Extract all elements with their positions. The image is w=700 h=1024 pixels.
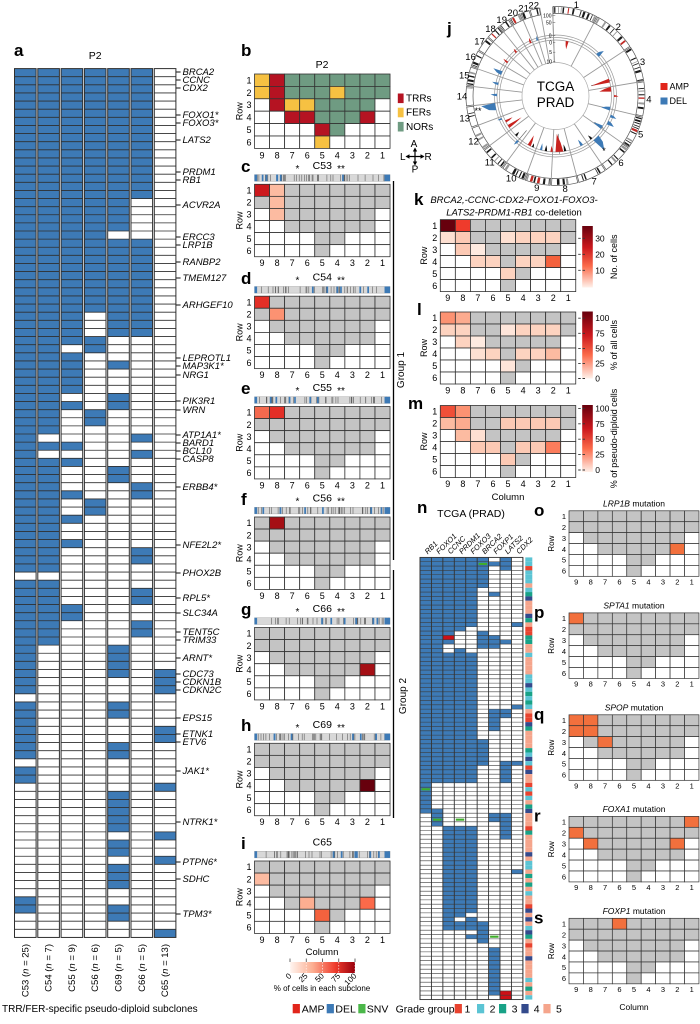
svg-text:4: 4 [246,444,251,454]
svg-text:7: 7 [475,479,480,489]
svg-text:4: 4 [335,370,340,380]
svg-text:r: r [534,807,541,826]
svg-text:1: 1 [380,258,385,268]
svg-text:8: 8 [589,680,593,689]
svg-text:2: 2 [246,88,251,98]
svg-text:Row: Row [547,535,556,551]
svg-text:6: 6 [246,137,251,147]
svg-text:*: * [296,607,300,618]
svg-text:4: 4 [521,479,526,489]
svg-text:6: 6 [490,479,495,489]
svg-text:NORs: NORs [406,122,433,133]
svg-text:9: 9 [574,782,578,791]
svg-text:4: 4 [335,258,340,268]
svg-text:3: 3 [562,840,566,849]
svg-text:4: 4 [521,386,526,396]
svg-text:1: 1 [574,0,579,11]
svg-text:4: 4 [562,647,566,656]
svg-text:6: 6 [305,701,310,711]
svg-text:C53 (n = 25): C53 (n = 25) [20,944,31,997]
svg-text:6: 6 [305,591,310,601]
svg-text:1: 1 [562,818,566,827]
svg-text:7: 7 [290,480,295,490]
svg-text:3: 3 [661,985,665,994]
svg-text:LRP1B mutation: LRP1B mutation [603,498,665,508]
svg-text:4: 4 [432,349,437,359]
svg-text:ETV6: ETV6 [183,737,207,748]
svg-text:h: h [241,716,251,735]
svg-text:5: 5 [320,817,325,827]
svg-text:% of all cells: % of all cells [609,319,619,370]
svg-text:8: 8 [589,883,593,892]
svg-text:5: 5 [632,883,636,892]
svg-text:Grade group: Grade group [396,1004,455,1016]
svg-text:a: a [14,41,24,60]
svg-text:5: 5 [432,455,437,465]
svg-text:100: 100 [543,14,552,20]
svg-text:4: 4 [562,545,566,554]
svg-text:R: R [425,152,432,163]
svg-text:6: 6 [432,281,437,291]
svg-text:5: 5 [320,370,325,380]
svg-text:1: 1 [432,313,437,323]
svg-text:C65: C65 [313,837,332,849]
svg-text:7: 7 [603,782,607,791]
svg-text:5: 5 [505,479,510,489]
svg-text:9: 9 [259,151,264,161]
svg-text:1: 1 [566,293,571,303]
svg-text:RANBP2: RANBP2 [183,257,222,268]
svg-text:25: 25 [595,358,605,368]
svg-text:6: 6 [432,373,437,383]
svg-text:2: 2 [432,419,437,429]
svg-text:3: 3 [350,480,355,490]
svg-text:TPM3*: TPM3* [183,909,212,920]
svg-text:1: 1 [562,614,566,623]
svg-text:Row: Row [235,654,245,673]
svg-text:0: 0 [549,41,552,47]
svg-text:4: 4 [246,898,251,908]
svg-text:AMP: AMP [670,82,690,92]
svg-text:L: L [400,152,406,163]
svg-text:6: 6 [305,935,310,945]
svg-text:8: 8 [275,935,280,945]
svg-text:6: 6 [305,370,310,380]
svg-text:10: 10 [506,174,517,185]
svg-text:C65 (n = 13): C65 (n = 13) [160,944,171,997]
svg-text:5: 5 [632,680,636,689]
svg-text:1: 1 [690,883,694,892]
svg-text:2: 2 [675,883,679,892]
svg-text:20: 20 [507,8,518,19]
svg-text:ACVR2A: ACVR2A [182,200,221,211]
svg-text:LATS2-PRDM1-RB1 co-deletion: LATS2-PRDM1-RB1 co-deletion [446,208,582,219]
svg-text:FERs: FERs [406,108,431,119]
svg-text:2: 2 [562,931,566,940]
svg-text:1: 1 [246,629,251,639]
svg-text:2: 2 [365,591,370,601]
svg-text:22: 22 [528,0,539,11]
svg-text:2: 2 [562,523,566,532]
svg-text:7: 7 [603,883,607,892]
svg-text:C53: C53 [313,160,332,172]
svg-text:8: 8 [275,370,280,380]
svg-text:Row: Row [419,432,429,451]
svg-text:4: 4 [335,701,340,711]
svg-text:Row: Row [547,943,556,959]
svg-text:5: 5 [505,386,510,396]
svg-text:4: 4 [534,1004,540,1016]
svg-text:2: 2 [551,386,556,396]
svg-text:7: 7 [603,680,607,689]
svg-text:LATS2: LATS2 [183,135,212,146]
svg-text:9: 9 [574,883,578,892]
svg-text:0: 0 [595,465,600,475]
svg-text:n: n [417,498,427,517]
svg-text:3: 3 [246,210,251,220]
svg-text:2: 2 [551,479,556,489]
svg-text:NRG1: NRG1 [183,370,209,381]
svg-text:1: 1 [380,480,385,490]
svg-text:50: 50 [546,21,552,27]
svg-text:**: ** [337,164,345,175]
svg-text:6: 6 [562,567,566,576]
svg-text:o: o [534,501,544,520]
svg-text:TMEM127: TMEM127 [183,273,228,284]
svg-text:2: 2 [365,935,370,945]
svg-text:g: g [241,600,251,619]
svg-text:1: 1 [690,578,694,587]
svg-text:4: 4 [562,850,566,859]
svg-text:C56 (n = 6): C56 (n = 6) [90,944,101,992]
svg-text:3: 3 [562,534,566,543]
svg-text:2: 2 [675,985,679,994]
svg-text:% of pseudo-diploid cells: % of pseudo-diploid cells [609,388,619,488]
svg-text:7: 7 [290,701,295,711]
svg-text:7: 7 [603,985,607,994]
svg-text:2: 2 [365,258,370,268]
svg-text:1: 1 [246,75,251,85]
svg-text:s: s [534,909,543,928]
svg-text:9: 9 [259,370,264,380]
svg-text:3: 3 [432,245,437,255]
svg-text:2: 2 [246,198,251,208]
svg-text:SLC34A: SLC34A [183,608,218,619]
svg-text:3: 3 [246,653,251,663]
svg-text:JAK1*: JAK1* [182,766,210,777]
svg-text:b: b [241,41,251,60]
svg-text:1: 1 [246,518,251,528]
svg-text:2: 2 [246,530,251,540]
svg-text:1: 1 [246,862,251,872]
svg-text:5: 5 [562,658,566,667]
svg-text:7: 7 [475,293,480,303]
svg-text:4: 4 [246,222,251,232]
svg-text:4: 4 [646,985,650,994]
svg-text:3: 3 [536,386,541,396]
svg-text:Column: Column [619,1002,649,1012]
svg-text:3: 3 [246,542,251,552]
svg-text:7: 7 [475,386,480,396]
svg-text:6: 6 [246,579,251,589]
svg-text:C66 (n = 5): C66 (n = 5) [137,944,148,992]
svg-text:6: 6 [246,923,251,933]
svg-text:CDX2: CDX2 [183,83,209,94]
svg-text:3: 3 [246,432,251,442]
svg-text:8: 8 [460,479,465,489]
svg-text:1: 1 [380,591,385,601]
svg-text:C55: C55 [313,382,332,394]
svg-text:1: 1 [380,701,385,711]
svg-text:8: 8 [589,985,593,994]
svg-text:4: 4 [335,817,340,827]
svg-text:10: 10 [546,60,552,66]
svg-text:FOXA1 mutation: FOXA1 mutation [603,804,666,814]
svg-text:4: 4 [246,554,251,564]
svg-text:10: 10 [595,265,605,275]
svg-text:4: 4 [646,782,650,791]
svg-text:4: 4 [432,257,437,267]
svg-text:8: 8 [460,293,465,303]
svg-text:9: 9 [259,701,264,711]
svg-text:6: 6 [305,258,310,268]
svg-text:NTRK1*: NTRK1* [183,817,218,828]
svg-text:6: 6 [618,158,623,169]
svg-text:8: 8 [275,817,280,827]
svg-text:5: 5 [320,258,325,268]
svg-text:3: 3 [246,322,251,332]
svg-text:6: 6 [305,480,310,490]
svg-text:75: 75 [595,419,605,429]
svg-text:C66: C66 [313,603,332,615]
svg-text:SNV: SNV [367,1004,389,1016]
svg-text:2: 2 [246,757,251,767]
svg-text:8: 8 [563,184,568,195]
svg-text:2: 2 [490,1004,496,1016]
svg-text:50: 50 [595,343,605,353]
svg-text:4: 4 [335,151,340,161]
svg-text:3: 3 [350,817,355,827]
svg-text:C56: C56 [313,493,332,505]
svg-text:1: 1 [380,151,385,161]
svg-text:3: 3 [432,337,437,347]
svg-text:2: 2 [675,680,679,689]
svg-text:5: 5 [562,963,566,972]
svg-text:e: e [241,379,250,398]
svg-text:8: 8 [275,258,280,268]
svg-text:ERBB4*: ERBB4* [183,482,218,493]
svg-text:4: 4 [646,578,650,587]
svg-text:2: 2 [246,874,251,884]
svg-text:1: 1 [432,221,437,231]
svg-text:5: 5 [632,985,636,994]
svg-text:5: 5 [549,50,552,56]
svg-text:3: 3 [661,782,665,791]
svg-text:l: l [417,300,422,319]
svg-text:6: 6 [490,386,495,396]
svg-text:2: 2 [616,22,621,33]
svg-text:TRRs: TRRs [406,94,432,105]
svg-text:3: 3 [562,636,566,645]
svg-text:m: m [408,394,423,413]
svg-text:3: 3 [246,100,251,110]
svg-text:9: 9 [574,985,578,994]
svg-text:5: 5 [562,861,566,870]
svg-text:2: 2 [365,817,370,827]
svg-text:A: A [411,139,418,150]
svg-text:TCGA: TCGA [537,79,575,94]
svg-text:2: 2 [432,233,437,243]
svg-text:1: 1 [566,479,571,489]
svg-text:1: 1 [690,680,694,689]
svg-text:CDKN2C: CDKN2C [183,685,222,696]
svg-text:Group 2: Group 2 [398,677,409,714]
svg-text:3: 3 [640,57,645,68]
svg-text:6: 6 [305,151,310,161]
svg-text:3: 3 [536,479,541,489]
svg-text:8: 8 [275,701,280,711]
svg-text:9: 9 [259,817,264,827]
svg-text:4: 4 [335,591,340,601]
svg-text:30: 30 [595,233,605,243]
svg-text:6: 6 [617,578,621,587]
svg-text:3: 3 [350,935,355,945]
svg-text:4: 4 [646,94,651,105]
svg-text:6: 6 [562,974,566,983]
svg-text:1: 1 [246,186,251,196]
svg-text:3: 3 [536,293,541,303]
svg-text:5: 5 [632,578,636,587]
svg-text:16: 16 [465,52,476,63]
svg-text:5: 5 [246,677,251,687]
svg-text:19: 19 [496,15,507,26]
svg-text:4: 4 [562,749,566,758]
svg-text:9: 9 [574,680,578,689]
svg-text:2: 2 [365,701,370,711]
svg-text:FOXP1 mutation: FOXP1 mutation [603,906,666,916]
svg-text:*: * [296,386,300,397]
svg-text:6: 6 [562,771,566,780]
svg-text:RPL5*: RPL5* [183,593,211,604]
svg-text:SPOP mutation: SPOP mutation [605,702,664,712]
svg-text:4: 4 [562,952,566,961]
svg-text:6: 6 [490,293,495,303]
svg-text:BRCA2,-CCNC-CDX2-FOXO1-FOXO3-: BRCA2,-CCNC-CDX2-FOXO1-FOXO3- [430,195,597,206]
svg-text:P2: P2 [89,50,102,62]
svg-text:5: 5 [246,234,251,244]
svg-text:2: 2 [365,151,370,161]
svg-text:Row: Row [419,246,429,265]
svg-text:FOXO3*: FOXO3* [183,118,219,129]
svg-text:3: 3 [350,151,355,161]
svg-text:3: 3 [350,591,355,601]
svg-text:q: q [534,705,544,724]
svg-text:6: 6 [562,872,566,881]
svg-text:1: 1 [465,1004,471,1016]
svg-text:2: 2 [562,625,566,634]
svg-text:7: 7 [603,578,607,587]
svg-text:2: 2 [675,578,679,587]
svg-text:3: 3 [246,769,251,779]
svg-text:25: 25 [595,450,605,460]
svg-text:c: c [241,157,250,176]
svg-text:9: 9 [445,386,450,396]
svg-text:2: 2 [365,370,370,380]
svg-text:AMP: AMP [302,1004,325,1016]
svg-text:50: 50 [595,434,605,444]
svg-text:C55 (n = 9): C55 (n = 9) [67,944,78,992]
svg-text:3: 3 [661,883,665,892]
svg-text:*: * [296,276,300,287]
svg-text:TRR/FER-specific pseudo-diploi: TRR/FER-specific pseudo-diploid subclone… [2,1004,198,1015]
svg-text:6: 6 [562,669,566,678]
svg-text:1: 1 [690,782,694,791]
svg-text:3: 3 [661,578,665,587]
svg-text:5: 5 [246,793,251,803]
svg-text:5: 5 [246,911,251,921]
svg-text:6: 6 [246,246,251,256]
svg-text:6: 6 [246,468,251,478]
svg-text:2: 2 [675,782,679,791]
svg-text:p: p [534,603,544,622]
svg-text:1: 1 [246,297,251,307]
svg-text:1: 1 [562,920,566,929]
svg-text:Row: Row [235,433,245,452]
svg-text:5: 5 [320,701,325,711]
svg-text:20: 20 [595,249,605,259]
svg-text:WRN: WRN [183,405,206,416]
svg-text:1: 1 [380,817,385,827]
svg-text:8: 8 [275,151,280,161]
svg-text:9: 9 [574,578,578,587]
svg-text:1: 1 [432,407,437,417]
svg-text:6: 6 [617,782,621,791]
svg-text:Row: Row [235,211,245,230]
svg-text:Row: Row [419,339,429,358]
svg-text:2: 2 [551,293,556,303]
svg-text:3: 3 [512,1004,518,1016]
svg-text:3: 3 [350,258,355,268]
svg-text:6: 6 [246,805,251,815]
svg-text:1: 1 [380,935,385,945]
svg-text:6: 6 [246,358,251,368]
svg-text:5: 5 [638,130,643,141]
svg-text:4: 4 [646,680,650,689]
svg-text:7: 7 [290,370,295,380]
svg-text:RB1: RB1 [183,175,201,186]
svg-text:4: 4 [246,665,251,675]
svg-text:11: 11 [485,158,495,169]
svg-text:4: 4 [246,334,251,344]
svg-text:**: ** [337,497,345,508]
svg-text:7: 7 [290,258,295,268]
svg-text:5: 5 [562,760,566,769]
svg-text:6: 6 [432,467,437,477]
svg-text:21: 21 [518,3,529,14]
svg-text:Row: Row [235,770,245,789]
svg-text:8: 8 [275,480,280,490]
svg-text:6: 6 [617,985,621,994]
svg-text:PTPN6*: PTPN6* [183,857,218,868]
svg-text:7: 7 [592,176,597,187]
svg-text:Row: Row [235,102,245,121]
svg-text:6: 6 [305,817,310,827]
svg-text:% of cells in each subclone: % of cells in each subclone [274,984,371,993]
svg-text:TCGA (PRAD): TCGA (PRAD) [437,508,505,520]
svg-text:NFE2L2*: NFE2L2* [183,540,222,551]
svg-text:**: ** [337,276,345,287]
svg-text:5: 5 [632,782,636,791]
